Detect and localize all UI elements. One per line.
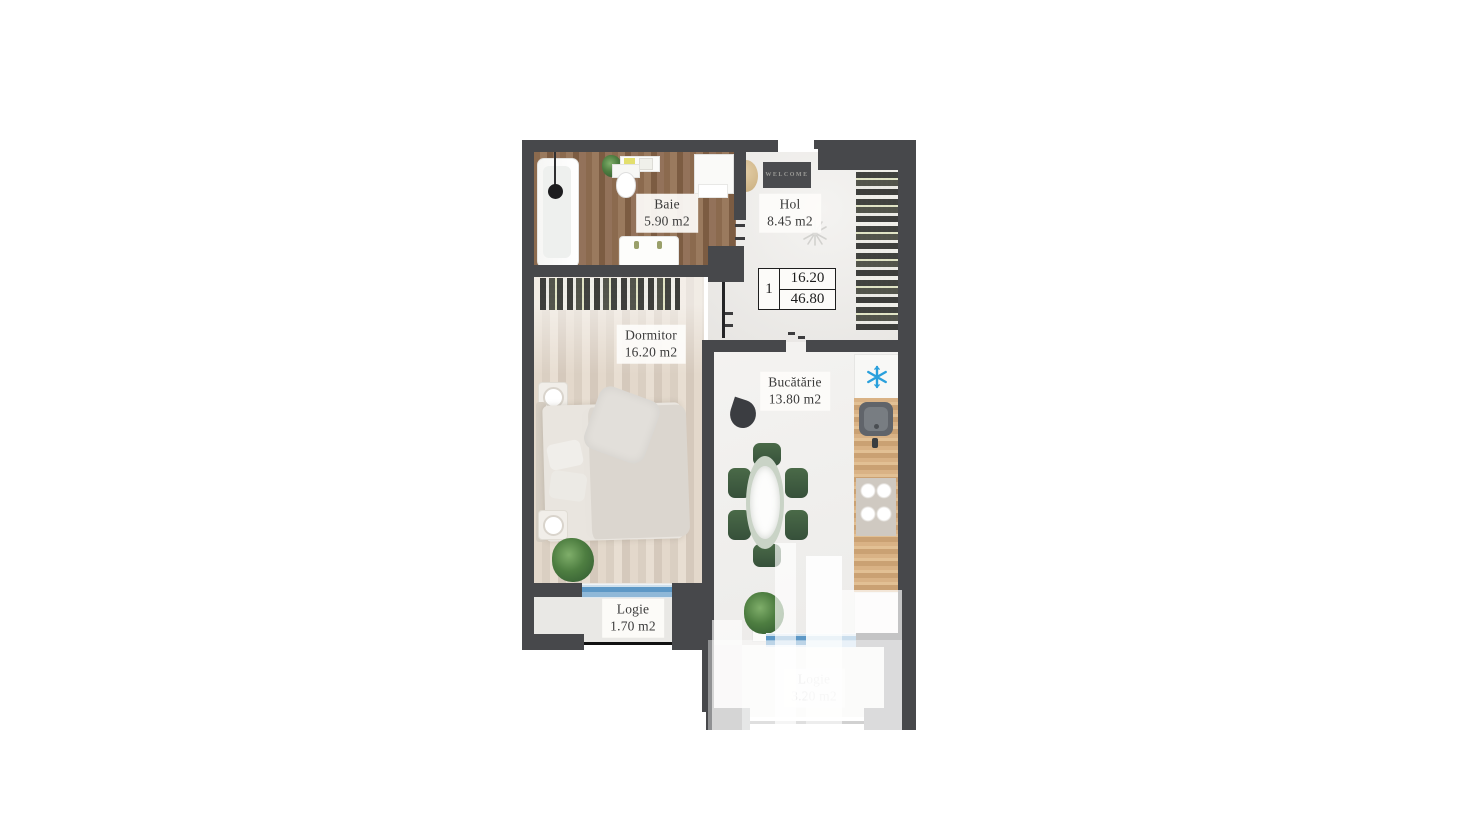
faucet-right <box>657 241 662 249</box>
room-name: Bucătărie <box>768 374 822 391</box>
kitchen-faucet <box>872 438 878 448</box>
towel-white <box>639 158 653 170</box>
room-name: Hol <box>767 196 813 213</box>
room-name: Logie <box>610 601 656 618</box>
wall-bucatarie-top-left <box>702 340 786 352</box>
washing-machine-door <box>698 184 728 198</box>
bed-pillow-2 <box>548 470 588 503</box>
unit-total-area: 46.80 <box>780 290 835 310</box>
bedroom-wardrobe <box>540 278 680 310</box>
wall-baie-dormitor <box>534 265 734 277</box>
room-label-dormitor: Dormitor 16.20 m2 <box>617 325 686 364</box>
logie-1-railing <box>582 642 672 645</box>
unit-info-box: 1 16.20 46.80 <box>758 268 836 310</box>
sink-drain <box>874 424 879 429</box>
wall-bedroom-window-left <box>534 583 582 597</box>
welcome-mat-text: WELCOME <box>765 172 808 178</box>
room-name: Baie <box>644 196 690 213</box>
white-overlay-6 <box>708 640 902 730</box>
room-label-bucatarie: Bucătărie 13.80 m2 <box>760 372 830 411</box>
room-name: Dormitor <box>625 327 678 344</box>
room-label-hol: Hol 8.45 m2 <box>759 194 821 233</box>
unit-number: 1 <box>759 269 780 309</box>
entrance-door-jamb <box>814 140 818 149</box>
room-area: 1.70 m2 <box>610 618 656 635</box>
dining-chair-right-lower <box>785 510 808 540</box>
apartment-floor-plan: WELCOME <box>522 140 916 730</box>
wall-bucatarie-top-right <box>806 340 900 352</box>
dining-chair-right-upper <box>785 468 808 498</box>
wall-top-left <box>522 140 778 152</box>
wall-baie-hol <box>734 152 746 220</box>
room-area: 13.80 m2 <box>768 391 822 408</box>
fridge <box>854 354 900 400</box>
room-label-logie-1: Logie 1.70 m2 <box>602 599 664 638</box>
wall-left <box>522 140 534 650</box>
lamp-bottom <box>543 515 564 536</box>
bedroom-plant <box>552 538 594 582</box>
shower-head-icon <box>548 184 563 199</box>
bedroom-door-hinge-mark-2 <box>725 324 733 327</box>
hallway-wardrobe <box>856 154 898 330</box>
room-area: 8.45 m2 <box>767 213 813 230</box>
unit-areas: 16.20 46.80 <box>780 269 835 309</box>
toilet-bowl <box>616 172 636 198</box>
floor-plan-page: WELCOME <box>0 0 1460 816</box>
unit-living-area: 16.20 <box>780 269 835 290</box>
wall-logie-1-bottom-left <box>522 634 584 650</box>
faucet-left <box>634 241 639 249</box>
bedroom-door-hinge-mark-1 <box>725 312 733 315</box>
bathtub-basin <box>543 166 571 258</box>
dining-table-top <box>750 466 780 539</box>
kitchen-door-hinge-mark-2 <box>798 336 805 339</box>
shower-bar <box>554 152 556 188</box>
welcome-mat: WELCOME <box>763 162 811 188</box>
bedroom-door-leaf <box>722 282 725 338</box>
snowflake-icon <box>865 365 889 389</box>
room-area: 16.20 m2 <box>625 344 678 361</box>
bath-door-hinge-mark-1 <box>735 224 745 227</box>
bedroom-loggia-window <box>582 584 672 598</box>
stove-cooktop <box>856 478 896 536</box>
room-area: 5.90 m2 <box>644 213 690 230</box>
vanity-sink <box>619 236 679 268</box>
room-label-baie: Baie 5.90 m2 <box>636 194 698 233</box>
kitchen-door-hinge-mark-1 <box>788 332 795 335</box>
bath-door-hinge-mark-2 <box>735 237 745 240</box>
